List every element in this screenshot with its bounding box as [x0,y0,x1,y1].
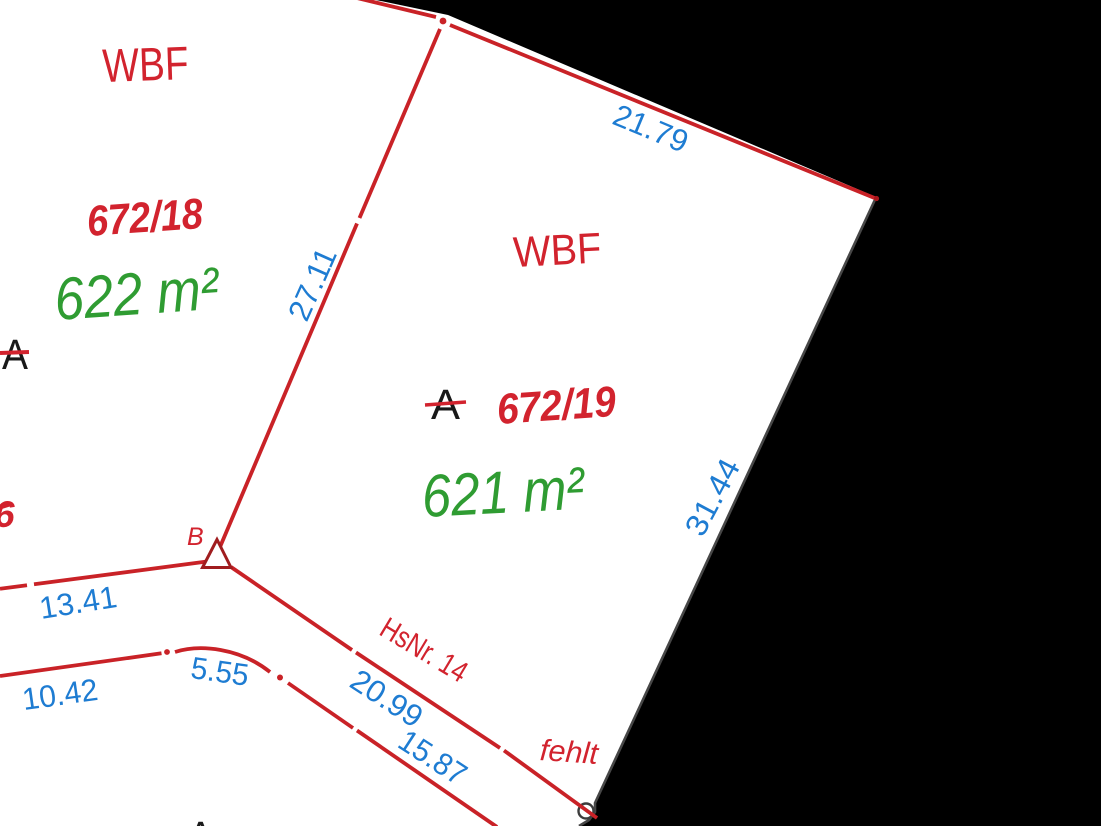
svg-text:A: A [187,813,214,826]
svg-text:672/19: 672/19 [495,378,617,434]
svg-text:672/18: 672/18 [85,190,204,246]
svg-text:WBF: WBF [101,36,189,92]
svg-text:fehlt: fehlt [539,734,601,771]
svg-text:6: 6 [0,494,15,535]
svg-text:A: A [2,331,28,379]
svg-text:WBF: WBF [512,224,602,277]
svg-text:621 m²: 621 m² [420,455,587,530]
svg-text:B: B [187,523,204,551]
svg-text:622 m²: 622 m² [52,255,222,333]
